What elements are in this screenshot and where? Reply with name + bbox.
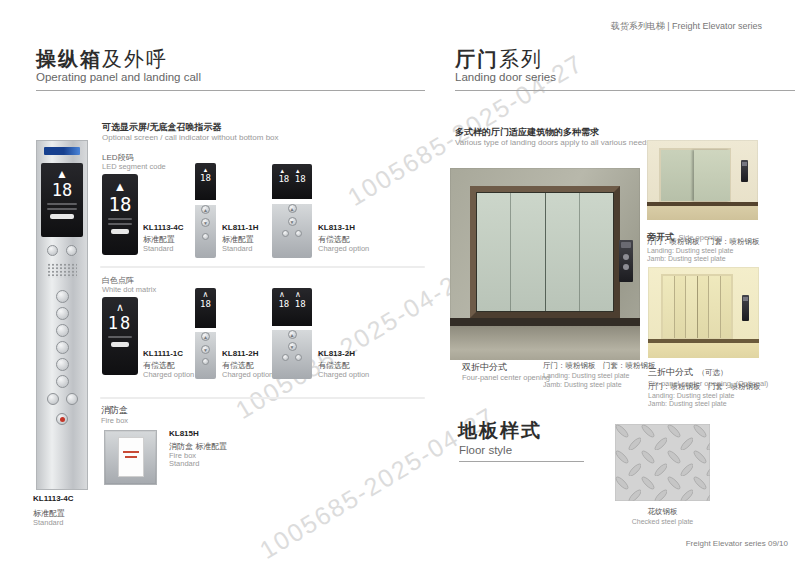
floor-reflection	[648, 343, 759, 358]
door-spec-en1: Landing: Dusting steel plate	[543, 372, 629, 379]
hall-call-panel	[619, 240, 633, 282]
page-header-series-label: 载货系列电梯 | Freight Elevator series	[611, 20, 762, 33]
display-info-row	[47, 203, 77, 205]
door-spec-en1: Landing: Dusting steel plate	[647, 247, 733, 254]
display-info-row	[108, 218, 132, 220]
key-switch	[295, 354, 302, 361]
item-model: KL813-1H	[318, 223, 355, 232]
display-info-pill	[50, 214, 74, 219]
cop-display: ▲ 18	[41, 163, 83, 237]
floor-indicator: 18	[195, 299, 216, 309]
call-down-button: ▼	[288, 342, 297, 351]
door-spec-en2: Jamb: Dusting steel plate	[648, 400, 727, 407]
alarm-button	[56, 413, 68, 425]
up-arrow-icon: ▲	[41, 168, 83, 180]
page-title-bold: 厅门	[455, 48, 499, 70]
title-divider	[455, 90, 795, 91]
door-open-close-buttons	[37, 393, 87, 405]
hall-call-panel	[741, 160, 748, 182]
cop-button	[56, 307, 69, 320]
floor-indicator: 18 18	[272, 299, 312, 309]
item-model: KL813-2H	[318, 349, 355, 358]
cop-model-label: KL1113-4C	[33, 494, 73, 503]
item-config-en: Standard	[143, 244, 173, 253]
floor-indicator: 18 18	[272, 174, 312, 184]
page-subtitle: Landing door series	[455, 71, 556, 83]
item-config-en: Standard	[222, 244, 252, 253]
hall-indicator-image: ▲ 18 ▲ ▼	[195, 163, 216, 253]
floor-style-title-cn: 地板样式	[458, 420, 542, 441]
up-arrow-icon: ▲	[102, 180, 138, 193]
cop-floor-buttons	[37, 290, 87, 388]
floor-style-divider	[459, 461, 584, 462]
key-switch	[282, 230, 289, 237]
door-spec-en2: Jamb: Dusting steel plate	[543, 381, 622, 388]
group-label-led-en: LED segment code	[102, 162, 166, 171]
page-title-rest: 系列	[499, 48, 543, 70]
door-frame	[659, 148, 731, 203]
floor-indicator: 18	[102, 193, 138, 215]
floor-indicator: 18	[195, 173, 216, 183]
key-switch	[202, 358, 209, 365]
item-model: KL811-2H	[222, 349, 258, 358]
firebox-red-text	[125, 456, 137, 458]
call-up-button: ▲	[201, 332, 210, 341]
call-up-button: ▲	[288, 204, 297, 213]
door-frame	[661, 274, 733, 340]
cop-button	[56, 290, 69, 303]
item-config-en: Charged option	[143, 370, 194, 379]
door-frame	[470, 186, 620, 318]
optional-section-title-en: Optional screen / call indicator without…	[102, 133, 279, 142]
door-photo-four-panel	[450, 168, 640, 360]
cop-button	[56, 375, 69, 388]
item-model: KL1113-4C	[143, 223, 183, 232]
firebox-desc-en2: Standard	[169, 459, 199, 468]
key-switch	[202, 233, 209, 240]
floor-style-title-en: Floor style	[459, 444, 512, 456]
item-config-en: Charged option	[318, 370, 369, 379]
page-title: 操纵箱及外呼	[36, 46, 168, 73]
call-down-button: ▼	[288, 217, 297, 226]
floor-style-title: 地板样式	[458, 418, 542, 444]
page-footer: Freight Elevator series 09/10	[686, 539, 788, 548]
floor-indicator: 18	[41, 180, 83, 200]
floor-reflection	[450, 326, 640, 360]
up-arrow-icon: ∧ ∧	[272, 291, 312, 299]
hall-indicator-image: ∧ 18 ▲ ▼	[195, 288, 216, 375]
page-title-bold: 操纵箱	[36, 48, 102, 70]
row-divider	[100, 397, 425, 399]
hall-call-panel	[742, 295, 749, 321]
floor-reflection	[647, 206, 758, 220]
firebox-red-text	[123, 451, 139, 453]
call-down-button: ▼	[201, 218, 210, 227]
checked-steel-plate-image	[615, 424, 710, 501]
cop-button	[66, 245, 77, 256]
key-switch	[282, 354, 289, 361]
title-divider	[36, 90, 425, 91]
page-subtitle: Operating panel and landing call	[36, 71, 201, 83]
cop-config-en: Standard	[33, 518, 63, 527]
hall-indicator-image: ▲ ▲ 18 18 ▲ ▼	[272, 164, 312, 253]
checker-plate-pattern	[615, 424, 710, 501]
cop-button	[47, 245, 58, 256]
cop-button	[56, 324, 69, 337]
door-spec-en2: Jamb: Dusting steel plate	[647, 255, 726, 262]
indicator-display-image: ∧ 18	[102, 297, 138, 375]
catalog-page: 1005685-2025-04-27 1005685-2025-04-27 10…	[0, 0, 800, 569]
up-arrow-icon: ∧	[102, 302, 138, 313]
door-spec-cn: 厅门：喷粉钢板 门套：喷粉钢板	[543, 361, 656, 371]
floor-indicator: 18	[102, 313, 138, 333]
display-info-row	[108, 336, 132, 338]
plate-caption-cn: 花纹钢板	[615, 507, 710, 517]
hall-indicator-image: ∧ ∧ 18 18 ▲ ▼	[272, 288, 312, 375]
speaker-grille	[47, 263, 77, 278]
up-arrow-icon: ∧	[195, 291, 216, 299]
door-photo-six-panel	[648, 267, 759, 358]
alarm-icon	[60, 417, 65, 422]
cop-button-row	[37, 245, 87, 256]
cop-button	[66, 393, 78, 405]
item-config-en: Charged option	[222, 370, 273, 379]
door-spec-cn: 厅门：喷粉钢板 门套：喷粉钢板	[647, 237, 760, 247]
display-info-pill	[111, 342, 129, 347]
item-config-en: Charged option	[318, 244, 369, 253]
brand-logo	[44, 147, 80, 155]
watermark-text: 1005685-2025-04-27	[231, 261, 477, 425]
cop-button	[56, 358, 69, 371]
call-up-button: ▲	[288, 330, 297, 339]
firebox-model: KL815H	[169, 429, 199, 438]
baseboard	[450, 318, 640, 326]
call-up-button: ▲	[201, 205, 210, 214]
plate-caption-en: Checked steel plate	[615, 518, 710, 525]
firebox-title-en: Fire box	[101, 416, 128, 425]
cop-button	[56, 341, 69, 354]
display-info-row	[47, 208, 77, 210]
page-title: 厅门系列	[455, 46, 543, 73]
item-model: KL811-1H	[222, 223, 258, 232]
display-info-pill	[111, 229, 129, 234]
page-title-rest: 及外呼	[102, 48, 168, 70]
group-label-dot-en: White dot matrix	[102, 285, 156, 294]
cop-button	[47, 393, 59, 405]
item-model: KL1111-1C	[143, 349, 183, 358]
door-spec-cn: 厅门：喷粉钢板 门套：喷粉钢板	[648, 382, 761, 392]
door-name-en: Four-panel center opening	[462, 373, 550, 382]
display-info-row	[108, 223, 132, 225]
indicator-display-image: ▲ 18	[102, 174, 138, 255]
firebox-image	[104, 430, 157, 485]
row-divider	[100, 266, 425, 268]
key-switch	[295, 230, 302, 237]
door-spec-en1: Landing: Dusting steel plate	[648, 392, 734, 399]
call-down-button: ▼	[201, 345, 210, 354]
car-operating-panel-image: ▲ 18	[36, 140, 88, 490]
door-photo-side-opening	[647, 140, 758, 220]
